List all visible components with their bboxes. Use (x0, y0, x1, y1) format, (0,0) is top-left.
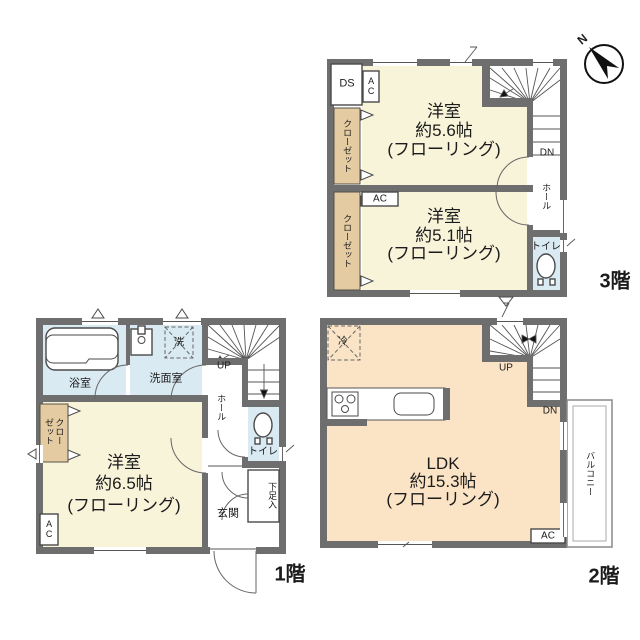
laundry-label: 洗 (174, 337, 184, 349)
closet-label-1f: クローゼット (44, 416, 65, 446)
ds-label: DS (339, 78, 354, 91)
dn-label-2f: DN (543, 405, 557, 417)
closet-lower-label-3f: クローゼット (342, 206, 352, 276)
bedroom-a-name: 洋室 (427, 102, 461, 122)
ac-label-1f: AC (44, 518, 54, 540)
toilet-label-1f: トイレ (248, 446, 278, 458)
toilet-label-3f: トイレ (531, 241, 561, 253)
hall-label-3f: ホール (541, 179, 551, 213)
bathtub-icon (46, 328, 118, 370)
ldk-name: LDK (426, 454, 459, 474)
ac-upper-label-3f: AC (366, 75, 376, 97)
floorplan-drawing (0, 0, 640, 640)
up-label-1f: UP (217, 360, 231, 372)
up-label-2f: UP (499, 362, 513, 374)
bedroom-b-finish: (フローリング) (387, 244, 500, 264)
refrigerator-label: 冷 (338, 336, 348, 348)
washroom-label: 洗面室 (150, 373, 183, 386)
bedroom-b-name: 洋室 (427, 207, 461, 227)
floor1-label: 1階 (274, 564, 305, 587)
entrance-label: 玄関 (217, 508, 239, 521)
floor2-label: 2階 (588, 566, 619, 589)
bedroom-1f-name: 洋室 (107, 453, 141, 473)
bedroom-1f-finish: (フローリング) (67, 496, 180, 516)
entrance-door (210, 547, 256, 593)
kitchen-counter (320, 388, 450, 426)
bedroom-1f-size: 約6.5帖 (95, 474, 153, 494)
balcony-label: バルコニー (585, 447, 595, 499)
floor2-plan (320, 303, 612, 548)
floor3-label: 3階 (599, 271, 630, 294)
compass-icon (585, 45, 623, 83)
floorplan-page: DS AC クローゼット クローゼット 洋室 約5.6帖 (フローリング) 洋室… (0, 0, 640, 640)
bath-label: 浴室 (69, 378, 91, 391)
bedroom-b-size: 約5.1帖 (415, 226, 473, 246)
ldk-size: 約15.3帖 (409, 472, 476, 492)
ac-lower-label-3f: AC (373, 193, 387, 205)
closet-upper-label-3f: クローゼット (342, 111, 352, 181)
ldk-finish: (フローリング) (386, 490, 499, 510)
hall-label-1f: ホール (216, 390, 226, 424)
floor3-plan (327, 47, 575, 306)
bedroom-a-finish: (フローリング) (387, 140, 500, 160)
bedroom-a-size: 約5.6帖 (415, 121, 473, 141)
ac-label-2f: AC (541, 530, 555, 542)
dn-label-3f: DN (540, 147, 554, 159)
shoe-cabinet-label: 下足入 (267, 478, 277, 512)
sink-icon (131, 326, 152, 355)
